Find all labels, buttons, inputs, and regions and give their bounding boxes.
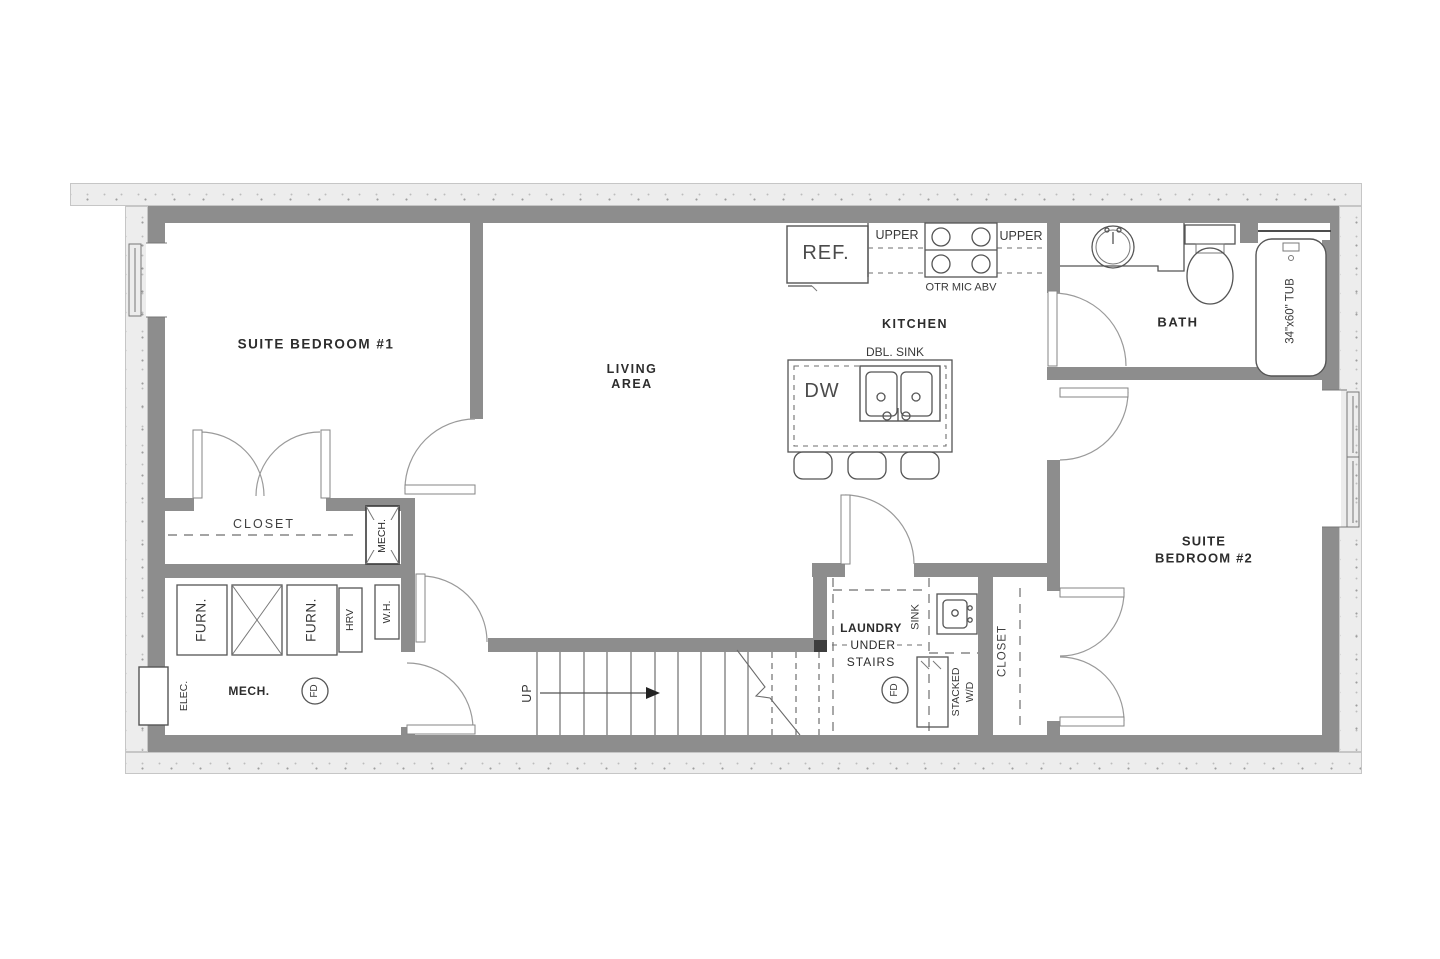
door-stair-hall bbox=[416, 574, 487, 642]
up-arrow bbox=[540, 687, 660, 699]
room-label-laundry-3: STAIRS bbox=[847, 656, 895, 668]
label-elec: ELEC. bbox=[179, 681, 190, 711]
break-line bbox=[737, 650, 800, 735]
island-stools bbox=[794, 452, 939, 479]
label-stacked: STACKED bbox=[951, 668, 962, 717]
label-otr-mic: OTR MIC ABV bbox=[926, 283, 997, 294]
label-refrigerator: REF. bbox=[802, 243, 849, 263]
label-dishwasher: DW bbox=[804, 381, 839, 401]
duct-icon bbox=[232, 585, 282, 655]
label-water-heater: W.H. bbox=[382, 601, 393, 624]
door-bedroom2 bbox=[1060, 388, 1128, 460]
label-dbl-sink: DBL. SINK bbox=[866, 346, 924, 358]
room-label-laundry-1: LAUNDRY bbox=[840, 622, 902, 634]
door-laundry bbox=[841, 495, 914, 564]
room-label-laundry-2: UNDER bbox=[850, 639, 895, 651]
room-label-mech: MECH. bbox=[228, 685, 269, 697]
label-hrv: HRV bbox=[345, 609, 356, 631]
double-sink-icon bbox=[860, 366, 940, 421]
room-label-closet1: CLOSET bbox=[233, 518, 295, 531]
label-upper-right: UPPER bbox=[999, 230, 1042, 243]
french-doors-closet1 bbox=[193, 430, 330, 498]
label-furnace2: FURN. bbox=[304, 598, 318, 642]
room-label-living-2: AREA bbox=[611, 378, 652, 391]
window-bedroom1 bbox=[129, 243, 167, 317]
label-furnace1: FURN. bbox=[194, 598, 208, 642]
room-label-bedroom2-2: BEDROOM #2 bbox=[1155, 552, 1253, 565]
door-mech bbox=[407, 663, 475, 734]
label-tub: 34"x60" TUB bbox=[1285, 278, 1297, 344]
room-label-kitchen: KITCHEN bbox=[882, 318, 948, 331]
room-label-bedroom2-1: SUITE bbox=[1182, 535, 1226, 548]
room-label-bedroom1: SUITE BEDROOM #1 bbox=[238, 337, 395, 351]
label-laundry-sink: SINK bbox=[911, 604, 922, 630]
room-label-living-1: LIVING bbox=[607, 363, 658, 376]
label-wd: W/D bbox=[965, 682, 976, 702]
bath-sink-icon bbox=[1092, 226, 1134, 268]
door-bath bbox=[1048, 291, 1126, 366]
french-doors-closet2 bbox=[1060, 588, 1124, 726]
electrical-panel-icon bbox=[139, 667, 168, 725]
room-label-closet2: CLOSET bbox=[997, 625, 1009, 677]
label-fd-laundry: FD bbox=[890, 683, 900, 696]
label-mech-chute: MECH. bbox=[377, 519, 388, 553]
laundry-sink-icon bbox=[937, 594, 977, 634]
label-upper-left: UPPER bbox=[875, 229, 918, 242]
floorplan-canvas: SUITE BEDROOM #1 LIVING AREA KITCHEN BAT… bbox=[0, 0, 1440, 959]
stacked-washer-dryer-icon bbox=[917, 657, 948, 727]
room-label-bath: BATH bbox=[1157, 316, 1198, 329]
column bbox=[814, 640, 827, 652]
toilet-icon bbox=[1185, 225, 1235, 304]
door-bedroom1 bbox=[405, 419, 475, 494]
vanity-counter bbox=[1060, 223, 1184, 271]
label-up: UP bbox=[521, 683, 534, 702]
plan-linework bbox=[0, 0, 1440, 959]
window-bedroom2 bbox=[1320, 390, 1359, 527]
stove-icon bbox=[925, 223, 997, 277]
shower-rod bbox=[1258, 223, 1331, 240]
label-fd-mech: FD bbox=[310, 684, 320, 697]
